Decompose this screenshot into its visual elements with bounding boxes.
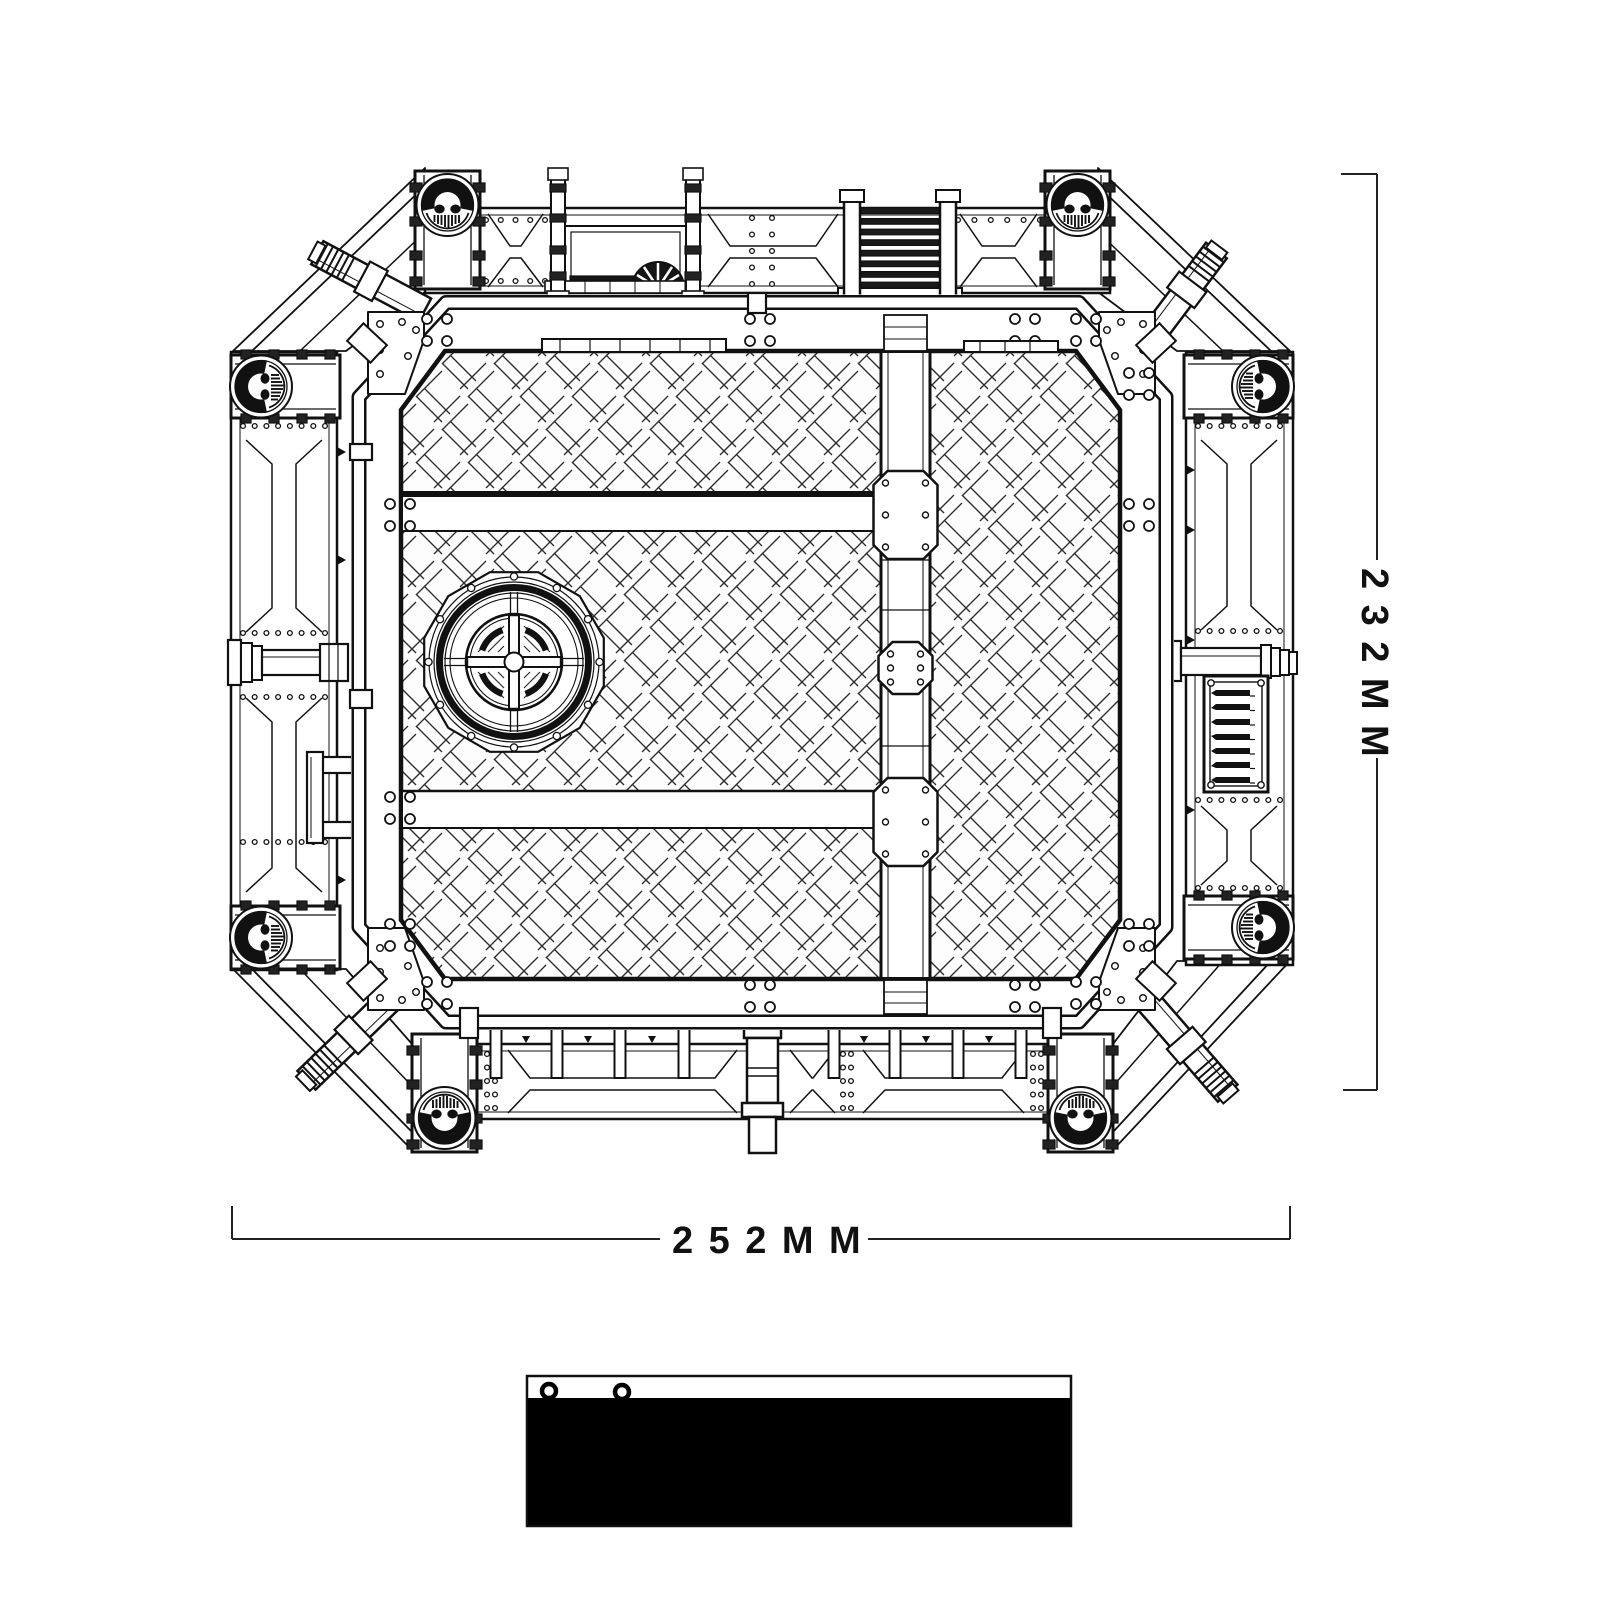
svg-text:232MM: 232MM bbox=[1353, 568, 1395, 772]
svg-text:252MM: 252MM bbox=[672, 1220, 876, 1262]
